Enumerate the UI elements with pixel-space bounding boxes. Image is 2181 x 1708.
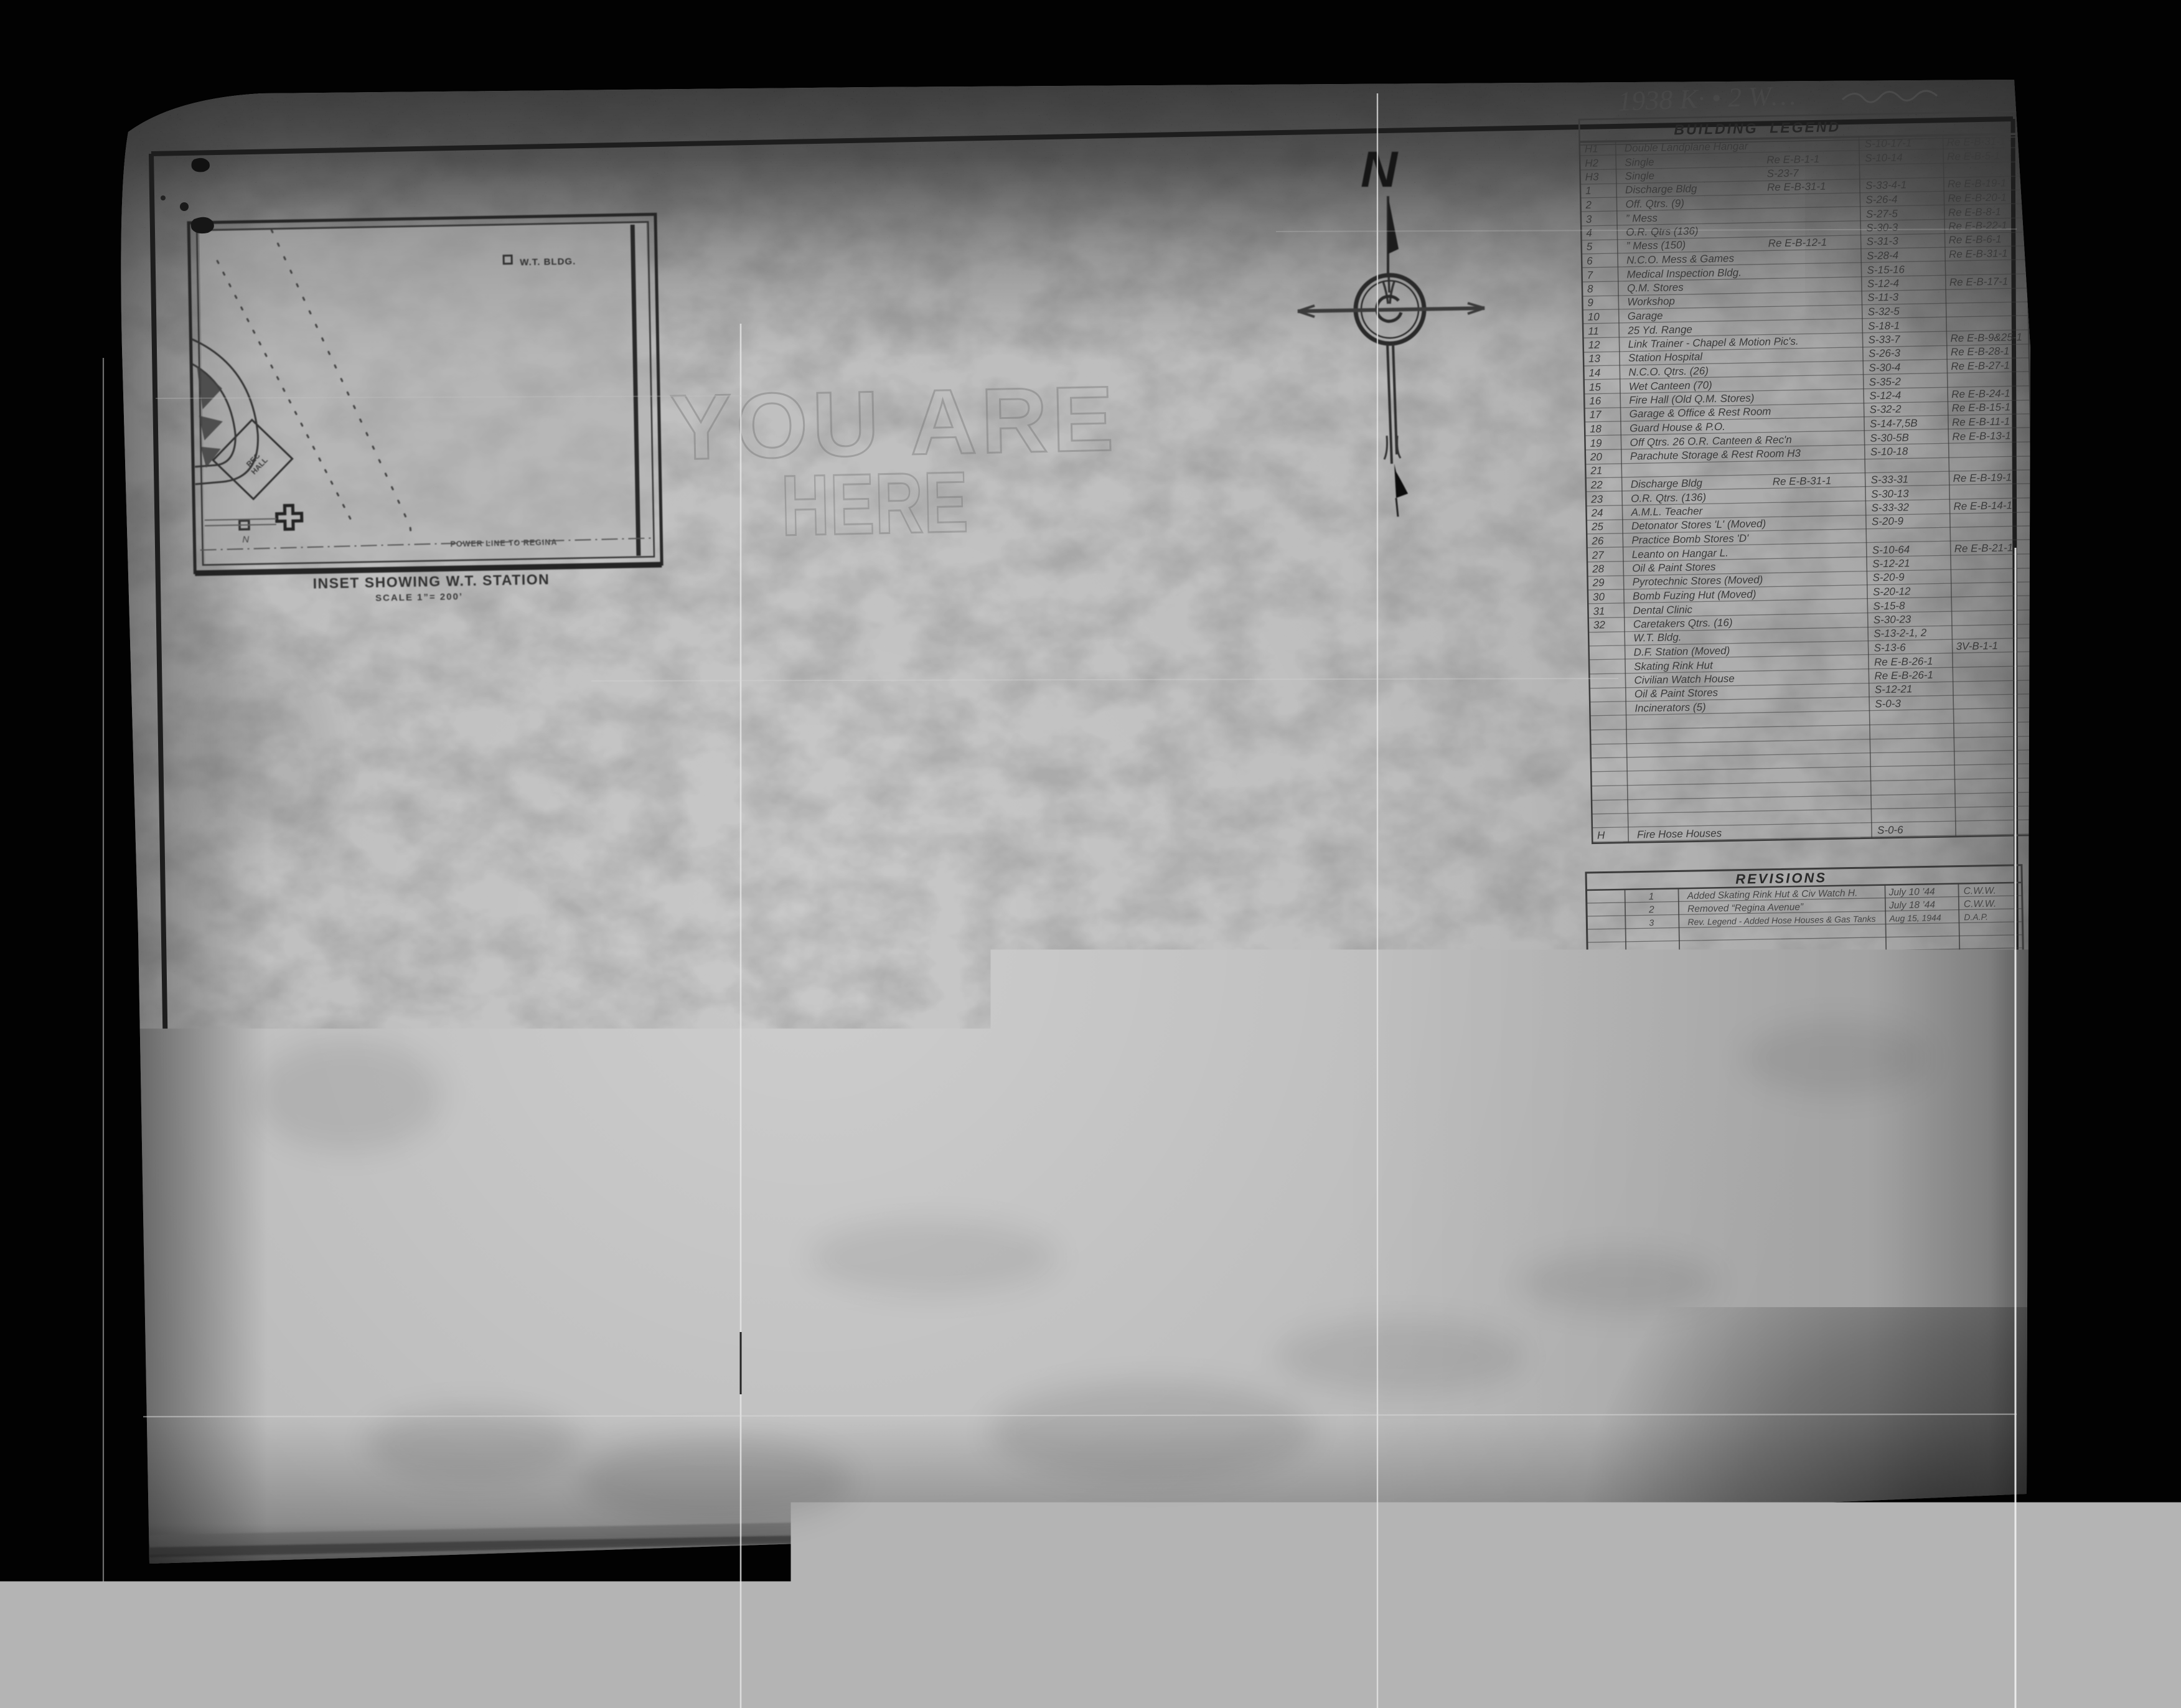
svg-text:C.W.W: C.W.W — [1966, 1432, 2017, 1450]
svg-text:CHECKED ●: CHECKED ● — [1684, 1450, 1764, 1464]
svg-text:31: 31 — [1207, 847, 1218, 858]
svg-text:17: 17 — [883, 914, 894, 925]
svg-text:BUILDING LEGEND: BUILDING LEGEND — [1674, 118, 1841, 138]
svg-text:2: 2 — [1218, 957, 1224, 967]
svg-text:21: 21 — [1590, 464, 1602, 476]
svg-text:HERE: HERE — [780, 454, 969, 554]
svg-text:13: 13 — [975, 740, 987, 753]
svg-text:22: 22 — [1252, 978, 1264, 988]
svg-text:N: N — [242, 534, 249, 545]
svg-text:5: 5 — [1135, 953, 1141, 964]
svg-text:1 of 1: 1 of 1 — [1772, 1466, 1814, 1486]
svg-text:20: 20 — [848, 924, 860, 934]
svg-text:19: 19 — [1203, 908, 1214, 918]
svg-text:12: 12 — [995, 862, 1007, 874]
svg-text:1”= 200’: 1”= 200’ — [1761, 1404, 1809, 1419]
svg-text:BH: BH — [1022, 1001, 1034, 1010]
svg-text:15: 15 — [1140, 975, 1151, 986]
svg-text:N: N — [1361, 141, 1399, 198]
svg-text:“6”: “6” — [1866, 1176, 1982, 1263]
svg-text:CivilianWatchHouse: CivilianWatchHouse — [885, 1012, 911, 1039]
svg-text:C.N. RAILWAY: C.N. RAILWAY — [1724, 1150, 1738, 1246]
svg-text:Waiting Room HutQ. S. (3-19-: Waiting Room HutQ. S. (3-19-1) Movedfrom… — [791, 1013, 875, 1046]
svg-text:1938 K· • 2 W…: 1938 K· • 2 W… — [1618, 80, 1796, 117]
svg-text:HOUSE: HOUSE — [934, 1011, 978, 1021]
svg-text:4: 4 — [1091, 909, 1097, 919]
svg-text:H3: H3 — [889, 848, 904, 861]
svg-text:18: 18 — [958, 985, 969, 995]
svg-text:9: 9 — [1173, 772, 1178, 783]
svg-text:SCALE 1”= 200’: SCALE 1”= 200’ — [375, 591, 463, 604]
svg-text:Dec 29/43.: Dec 29/43. — [1763, 1443, 1824, 1458]
svg-text:23: 23 — [1038, 978, 1049, 988]
svg-text:24: 24 — [1201, 639, 1213, 649]
svg-text:11: 11 — [1392, 976, 1402, 987]
svg-text:REVISIONS: REVISIONS — [1735, 870, 1827, 887]
svg-text:H1: H1 — [1090, 647, 1105, 660]
svg-text:W.T. BLDG.: W.T. BLDG. — [520, 256, 576, 268]
svg-text:BH: BH — [1117, 957, 1129, 966]
svg-text:16: 16 — [872, 942, 883, 953]
svg-text:6: 6 — [1174, 698, 1180, 709]
svg-text:14: 14 — [1074, 936, 1086, 948]
svg-text:10: 10 — [1216, 806, 1227, 817]
svg-text:ALARM HERE: ALARM HERE — [276, 1307, 848, 1412]
svg-text:NOTE :: NOTE : — [1244, 1422, 1308, 1440]
